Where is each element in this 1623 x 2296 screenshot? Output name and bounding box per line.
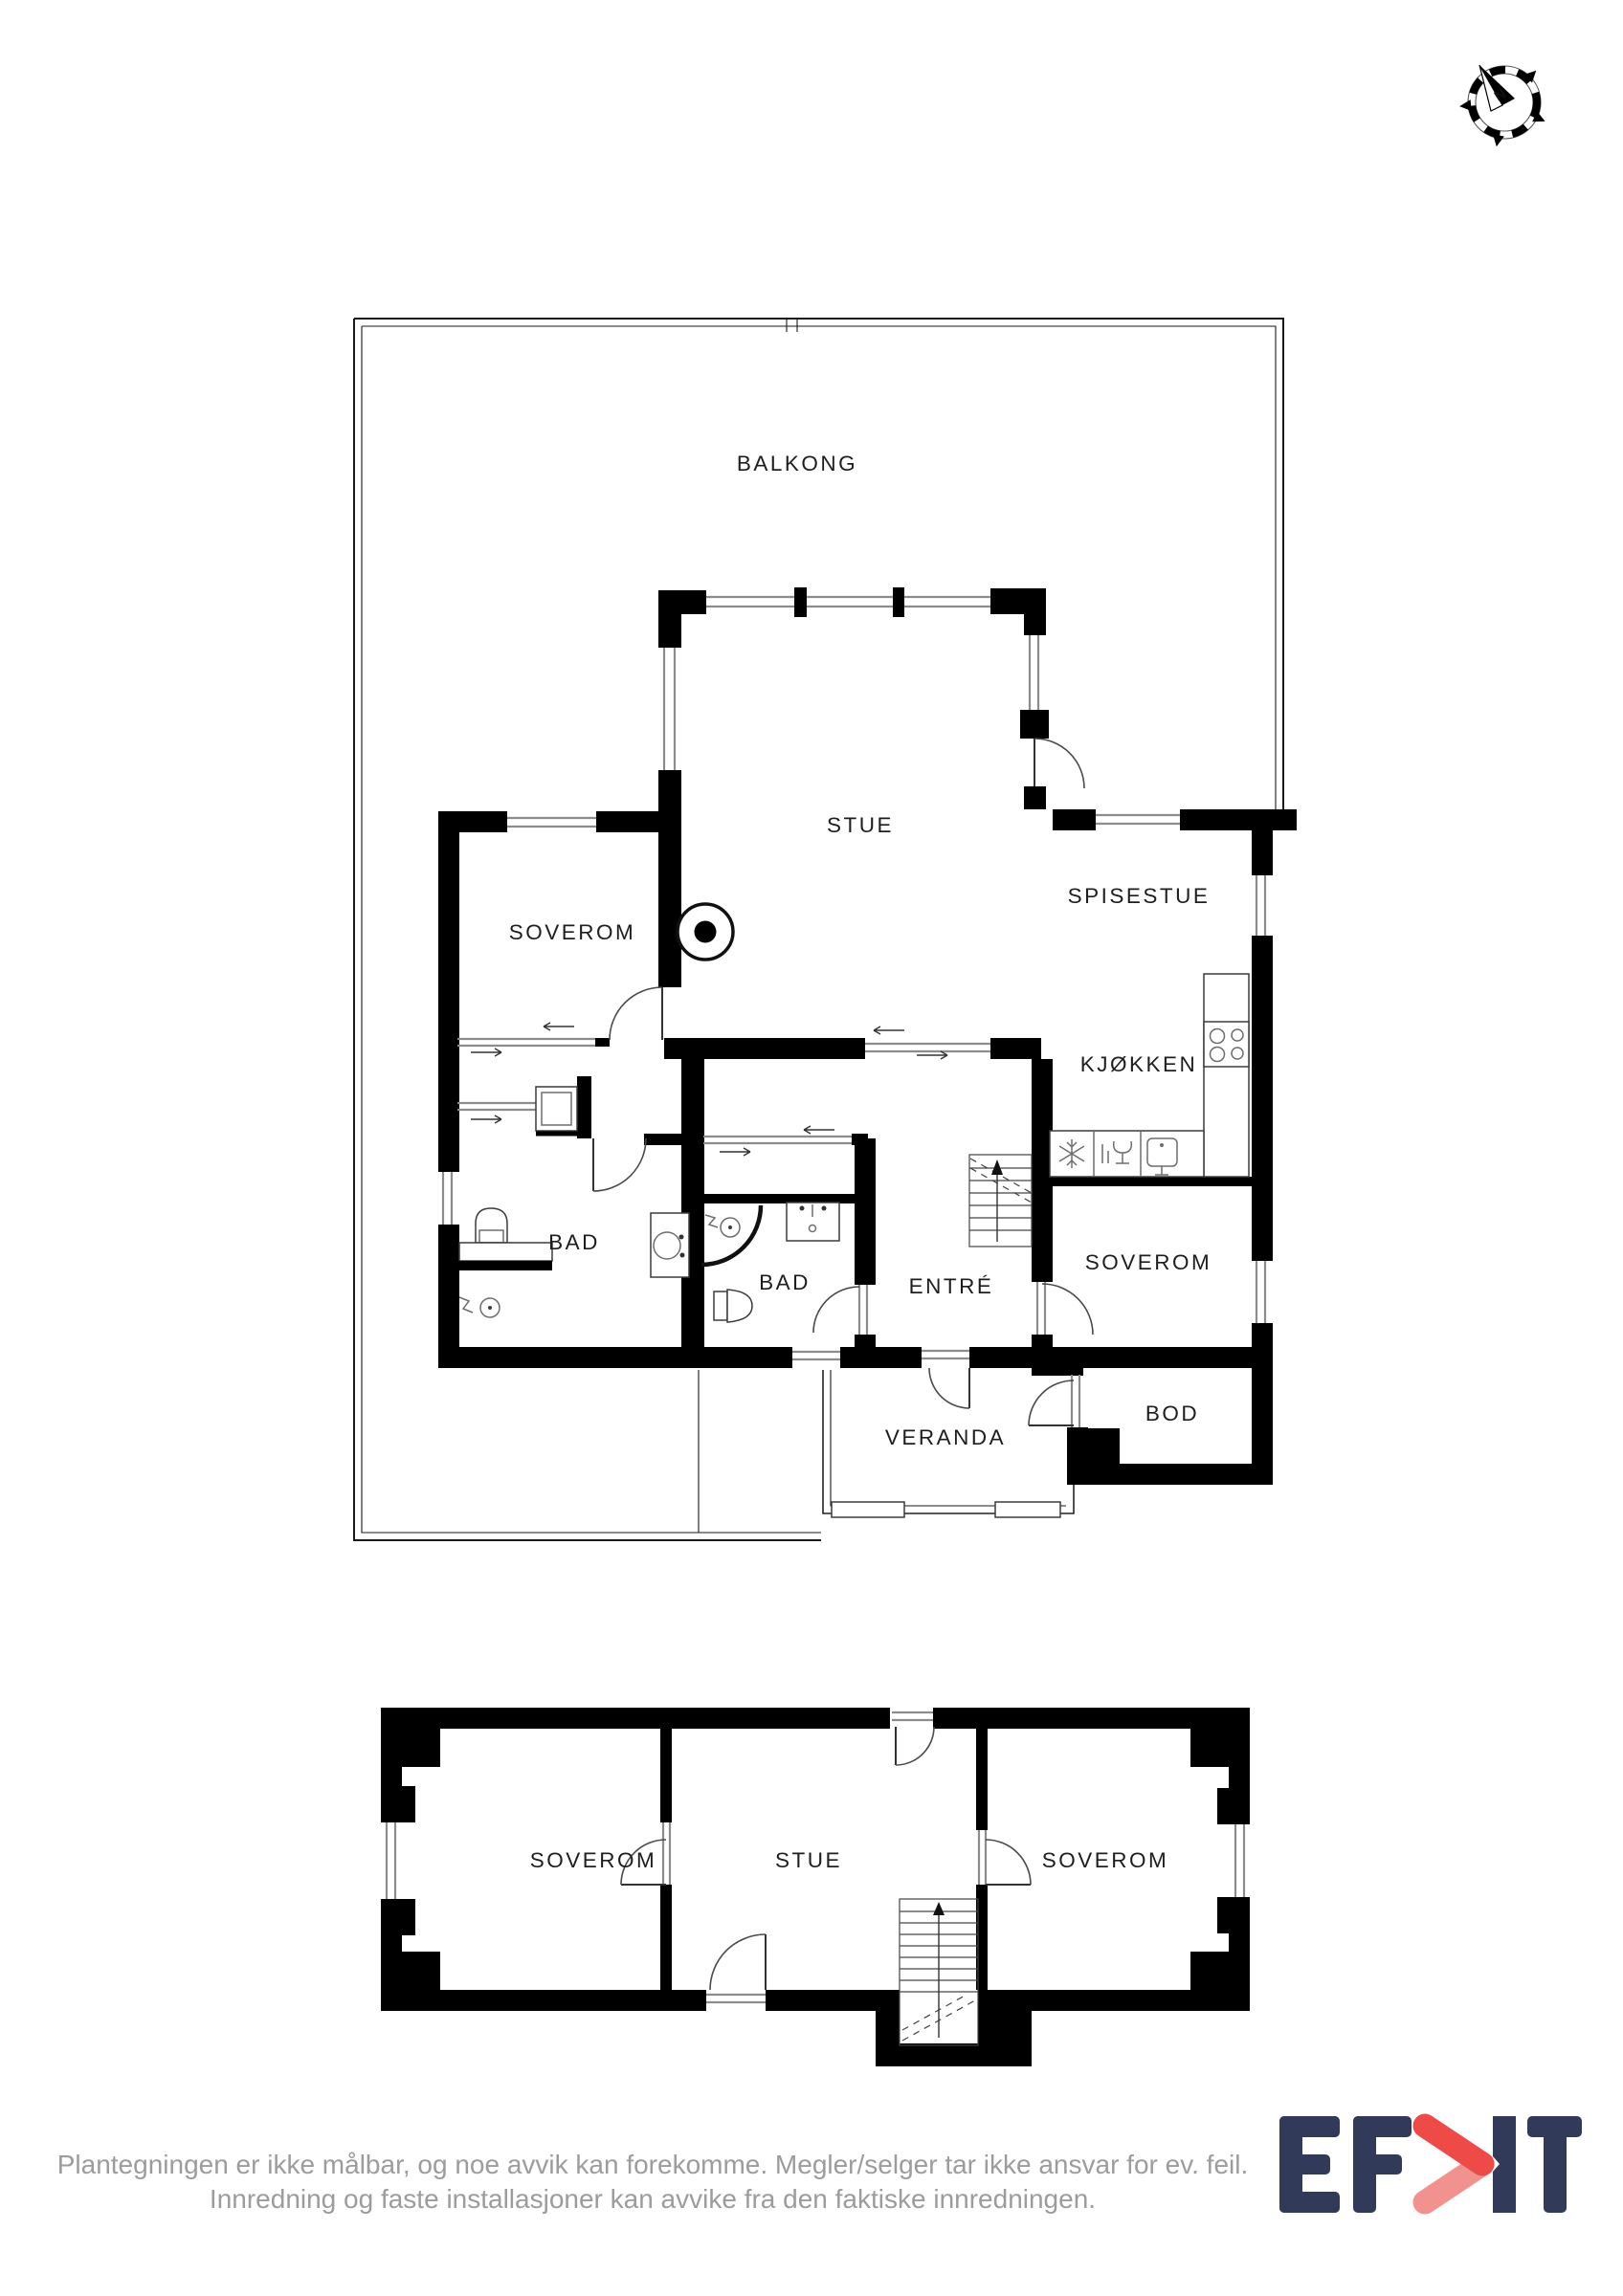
room-labels-lower: SOVEROM STUE SOVEROM xyxy=(530,1848,1169,1872)
footer-line-2: Innredning og faste installasjoner kan a… xyxy=(210,2184,1096,2214)
room-label-bad-center: BAD xyxy=(759,1270,811,1294)
stairs-lower xyxy=(900,1899,978,2045)
room-label-stue: STUE xyxy=(827,813,894,837)
room-label-balkong: BALKONG xyxy=(737,452,857,475)
wardrobe-icon xyxy=(536,1087,577,1134)
main-floorplan: BALKONG STUE SOVEROM SPISESTUE KJØKKEN B… xyxy=(354,319,1297,1540)
shower-icon xyxy=(701,1205,761,1265)
shower-icon xyxy=(459,1297,500,1317)
room-label-veranda: VERANDA xyxy=(885,1425,1006,1449)
lower-floorplan: SOVEROM STUE SOVEROM xyxy=(381,1708,1250,2066)
footer-disclaimer: Plantegningen er ikke målbar, og noe avv… xyxy=(57,2150,1249,2214)
room-label-lower-soverom-left: SOVEROM xyxy=(530,1848,657,1872)
room-label-entre: ENTRÉ xyxy=(909,1274,994,1298)
room-label-soverom-top: SOVEROM xyxy=(509,920,636,944)
fireplace-icon xyxy=(678,904,733,960)
footer-line-1: Plantegningen er ikke målbar, og noe avv… xyxy=(57,2150,1249,2179)
efkt-logo-chevron xyxy=(1425,2126,1482,2202)
bathroom-sink-icon xyxy=(651,1213,689,1277)
walls-lower xyxy=(381,1708,1250,2066)
room-label-bad-left: BAD xyxy=(548,1230,600,1254)
veranda-step xyxy=(995,1502,1060,1517)
washbasin-icon xyxy=(787,1203,839,1241)
stairs-main xyxy=(969,1155,1032,1247)
room-label-kjokken: KJØKKEN xyxy=(1080,1052,1198,1076)
room-label-soverom-right: SOVEROM xyxy=(1085,1250,1212,1274)
veranda-step xyxy=(832,1502,904,1517)
walls-main xyxy=(438,587,1297,1485)
stairs-up-arrow xyxy=(991,1159,1003,1175)
room-label-bod: BOD xyxy=(1145,1402,1199,1425)
toilet-icon xyxy=(452,1208,552,1270)
windows-main xyxy=(443,597,1265,1427)
room-label-lower-stue: STUE xyxy=(775,1848,842,1872)
stairs-up-arrow xyxy=(933,1902,945,1915)
compass-icon: N xyxy=(1459,65,1547,147)
toilet-icon xyxy=(714,1290,752,1322)
efkt-logo xyxy=(1279,2116,1582,2213)
room-label-spisestue: SPISESTUE xyxy=(1068,884,1211,908)
room-label-lower-soverom-right: SOVEROM xyxy=(1042,1848,1169,1872)
